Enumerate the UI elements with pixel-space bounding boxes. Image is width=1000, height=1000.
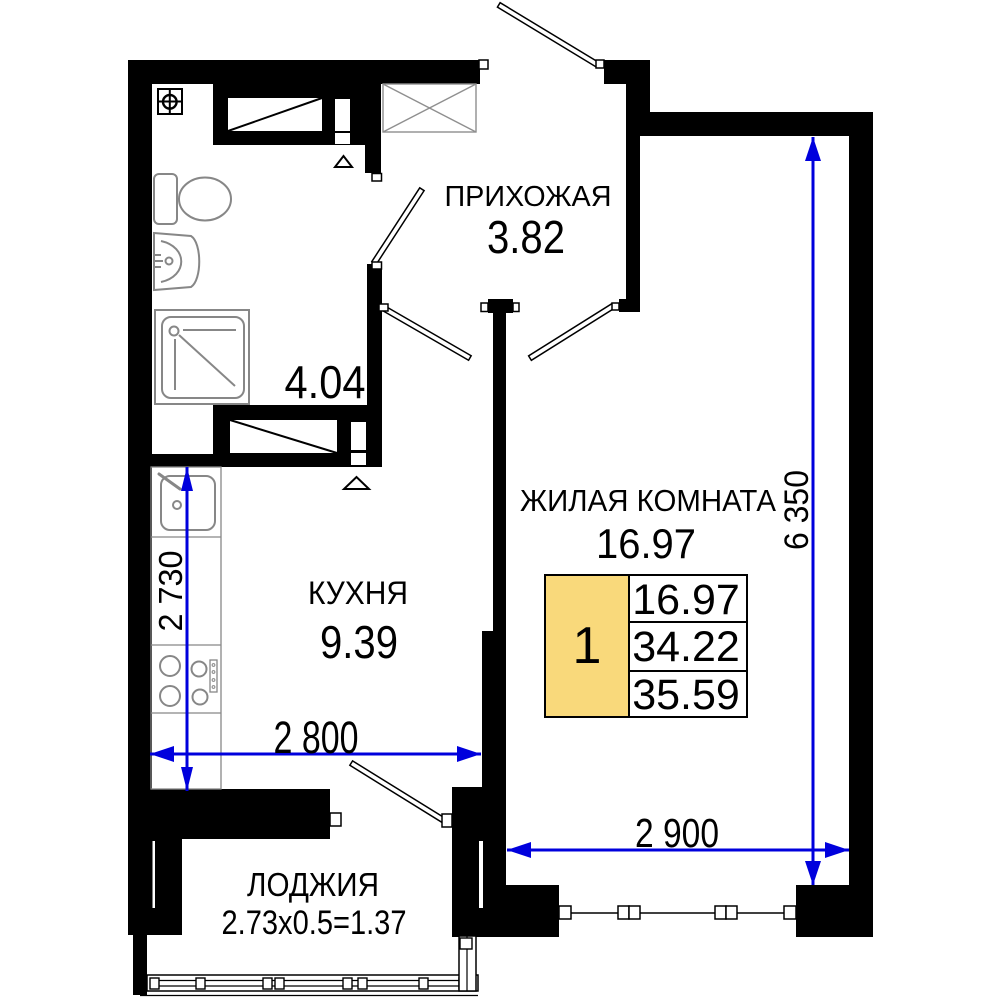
svg-text:1: 1: [573, 617, 602, 675]
svg-text:34.22: 34.22: [632, 623, 740, 671]
svg-text:3.82: 3.82: [487, 211, 565, 263]
svg-text:9.39: 9.39: [320, 616, 398, 668]
svg-text:16.97: 16.97: [632, 576, 740, 624]
svg-text:ЛОДЖИЯ: ЛОДЖИЯ: [247, 866, 379, 903]
svg-text:6 350: 6 350: [778, 470, 816, 550]
svg-text:КУХНЯ: КУХНЯ: [308, 575, 408, 611]
svg-text:ПРИХОЖАЯ: ПРИХОЖАЯ: [445, 181, 612, 213]
svg-text:35.59: 35.59: [632, 671, 740, 719]
svg-text:ЖИЛАЯ КОМНАТА: ЖИЛАЯ КОМНАТА: [520, 483, 776, 518]
svg-text:2 900: 2 900: [635, 810, 719, 856]
svg-text:4.04: 4.04: [285, 356, 366, 408]
svg-text:2 730: 2 730: [152, 551, 189, 632]
svg-text:16.97: 16.97: [596, 520, 696, 567]
svg-text:2.73x0.5=1.37: 2.73x0.5=1.37: [222, 904, 407, 942]
svg-text:2 800: 2 800: [274, 712, 359, 763]
